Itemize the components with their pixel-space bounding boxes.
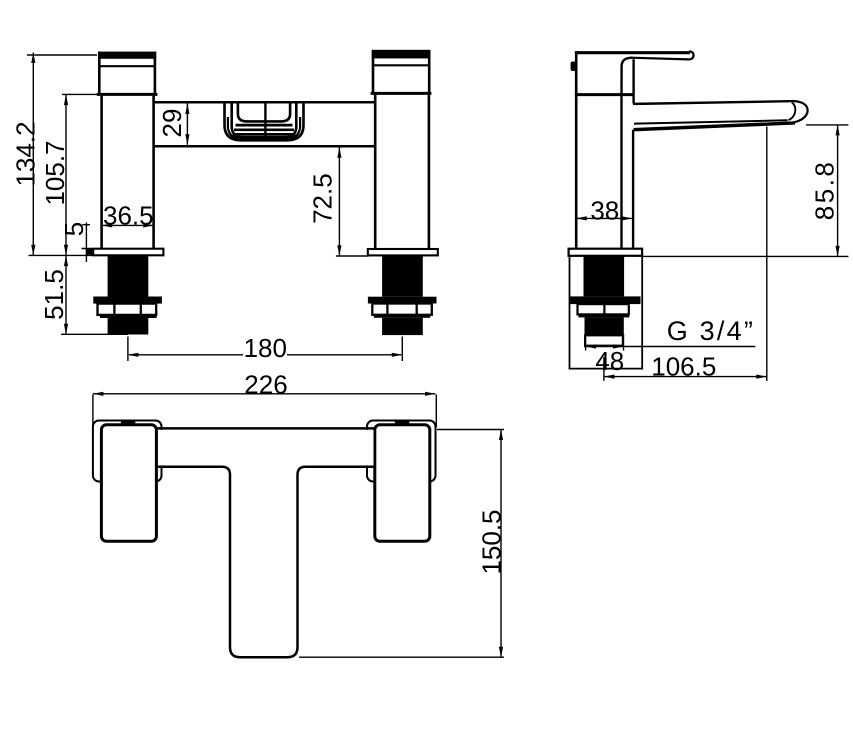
svg-text:5: 5 [59, 222, 89, 236]
svg-text:134.2: 134.2 [11, 121, 41, 186]
svg-text:226: 226 [244, 370, 287, 400]
svg-text:48: 48 [595, 346, 624, 376]
svg-text:29: 29 [157, 109, 187, 138]
svg-text:38: 38 [590, 196, 619, 226]
svg-text:36.5: 36.5 [103, 201, 154, 231]
svg-text:85.8: 85.8 [810, 160, 840, 221]
svg-text:105.7: 105.7 [40, 140, 70, 205]
svg-text:106.5: 106.5 [651, 352, 716, 382]
svg-text:150.5: 150.5 [476, 509, 506, 574]
svg-text:51.5: 51.5 [39, 269, 69, 320]
svg-text:G 3/4”: G 3/4” [667, 316, 755, 346]
svg-text:72.5: 72.5 [307, 173, 337, 224]
svg-text:180: 180 [244, 333, 287, 363]
